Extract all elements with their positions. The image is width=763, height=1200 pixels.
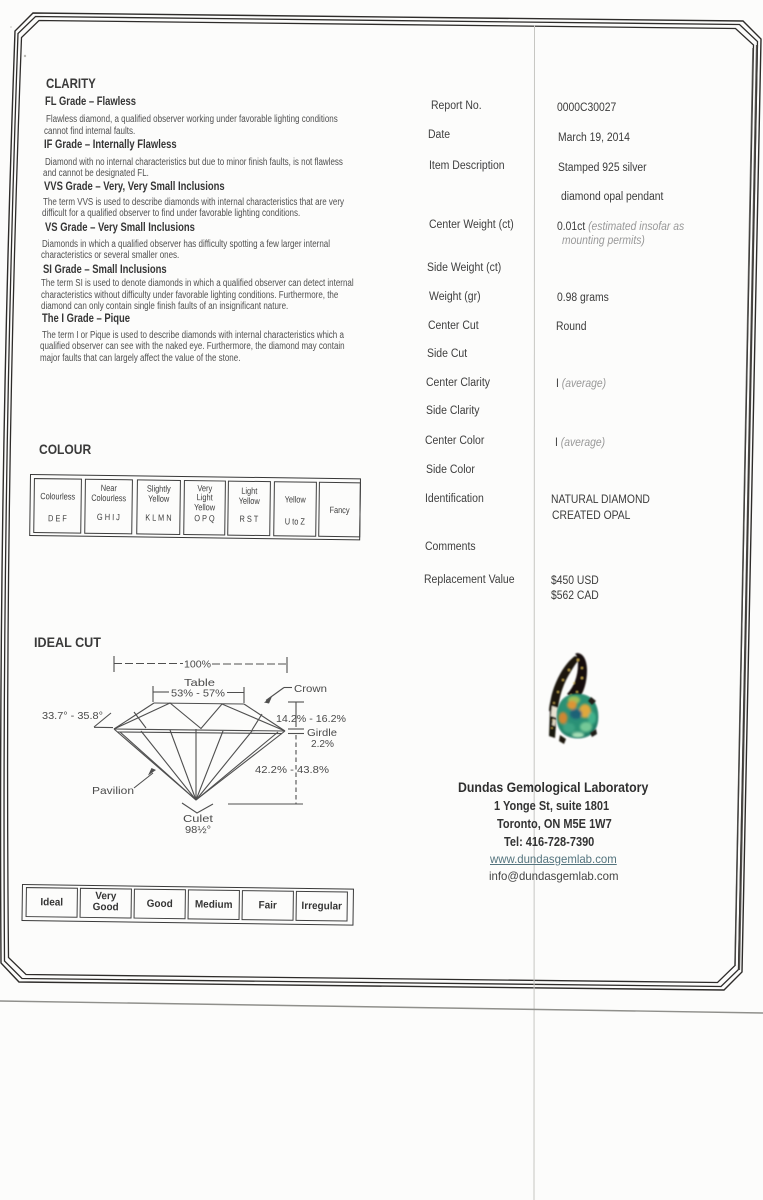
- svg-text:53% - 57%: 53% - 57%: [171, 688, 225, 700]
- svg-text:33.7° - 35.8°: 33.7° - 35.8°: [42, 710, 103, 722]
- svg-text:100%: 100%: [184, 659, 211, 671]
- svg-text:2.2%: 2.2%: [311, 738, 334, 750]
- svg-text:14.2% - 16.2%: 14.2% - 16.2%: [276, 713, 346, 725]
- svg-text:Crown: Crown: [294, 683, 327, 695]
- svg-text:Pavilion: Pavilion: [92, 785, 134, 797]
- svg-text:42.2% - 43.8%: 42.2% - 43.8%: [255, 764, 329, 776]
- svg-text:98½°: 98½°: [185, 824, 211, 836]
